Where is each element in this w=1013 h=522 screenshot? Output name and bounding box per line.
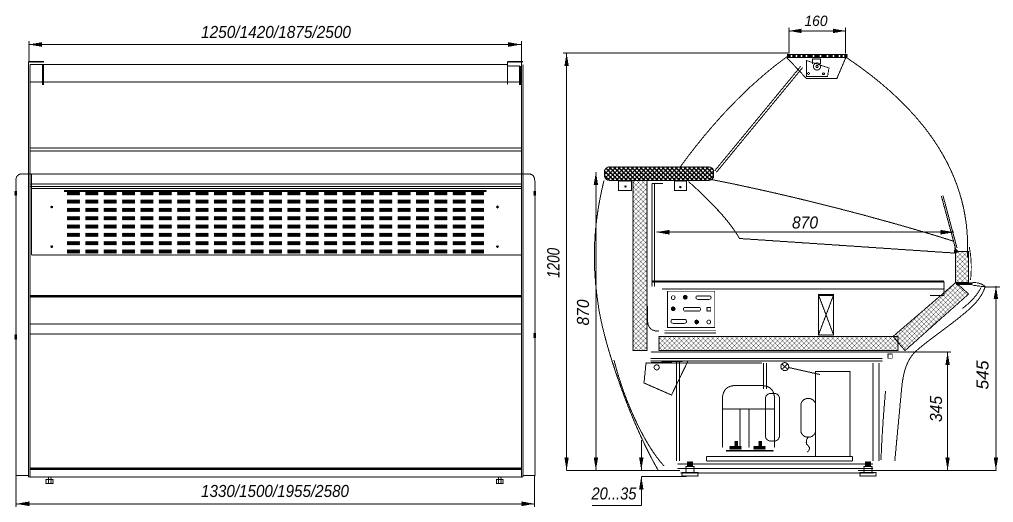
svg-text:545: 545 bbox=[972, 360, 992, 389]
svg-text:160: 160 bbox=[805, 13, 829, 30]
svg-text:345: 345 bbox=[926, 396, 946, 422]
svg-text:1250/1420/1875/2500: 1250/1420/1875/2500 bbox=[201, 22, 351, 42]
svg-text:1330/1500/1955/2580: 1330/1500/1955/2580 bbox=[201, 481, 349, 501]
svg-text:870: 870 bbox=[792, 213, 818, 233]
svg-text:1200: 1200 bbox=[544, 248, 564, 278]
svg-text:20...35: 20...35 bbox=[591, 484, 637, 504]
svg-text:870: 870 bbox=[573, 299, 593, 325]
